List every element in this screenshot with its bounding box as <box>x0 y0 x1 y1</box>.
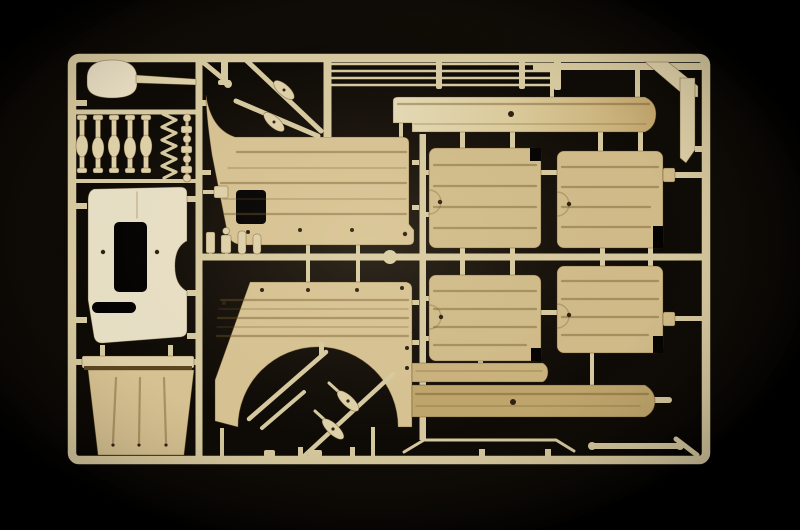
sprue-photo: Rectangular sprue frame with runner bars <box>0 0 800 530</box>
vignette-overlay <box>0 0 800 530</box>
sprue-canvas: Rectangular sprue frame with runner bars <box>0 0 800 530</box>
